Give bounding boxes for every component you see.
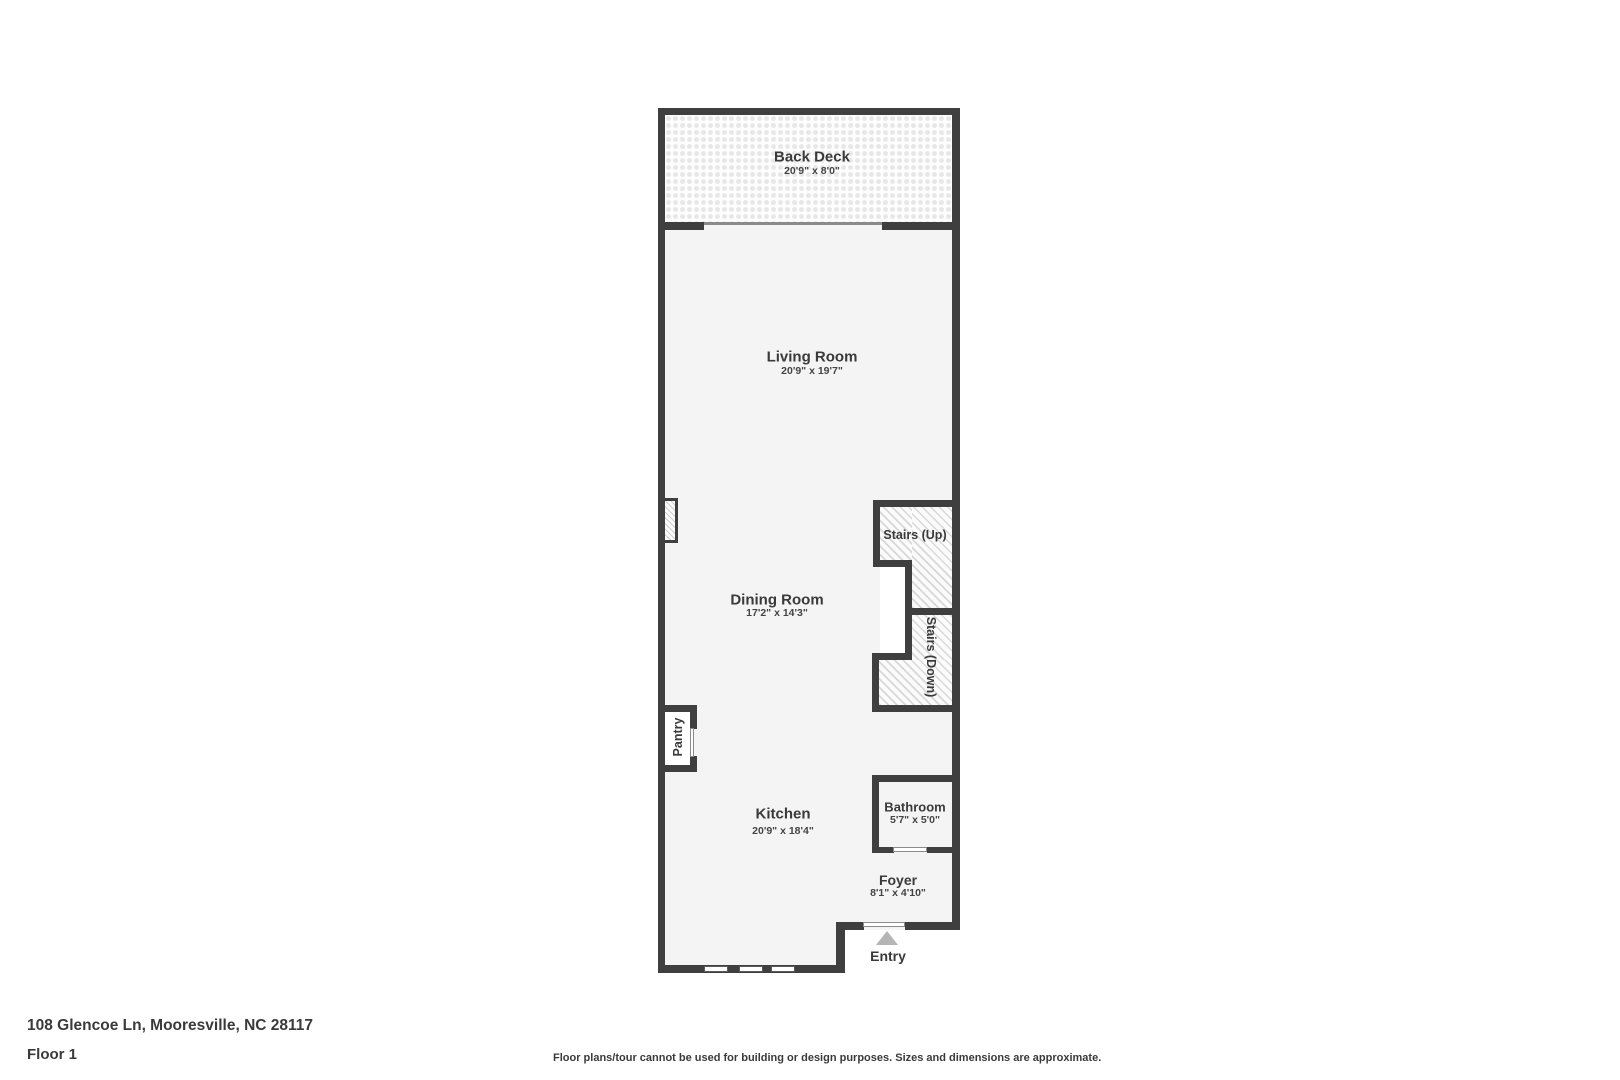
wall-segment	[872, 847, 894, 853]
wall-segment	[658, 765, 697, 772]
room-label-back-deck: Back Deck	[774, 149, 850, 166]
wall-segment	[882, 222, 960, 230]
room-label-kitchen: Kitchen	[755, 806, 810, 823]
window	[704, 966, 728, 972]
wall-segment	[872, 653, 879, 712]
stairs-up-area	[912, 507, 952, 608]
label-entry: Entry	[870, 948, 906, 964]
wall-segment	[952, 108, 960, 930]
entry-door	[863, 922, 905, 927]
wall-segment	[905, 608, 960, 615]
wall-segment	[873, 500, 960, 507]
floor-label: Floor 1	[27, 1046, 77, 1063]
wall-segment	[872, 705, 960, 712]
room-dims-kitchen: 20'9" x 18'4"	[752, 825, 814, 837]
wall-segment	[658, 108, 665, 973]
wall-segment	[873, 500, 880, 567]
floor-plan-page: Back Deck 20'9" x 8'0" Living Room 20'9"…	[0, 0, 1620, 1080]
wall-segment	[872, 775, 879, 853]
room-dims-bathroom: 5'7" x 5'0"	[890, 814, 940, 826]
window	[739, 966, 763, 972]
entry-arrow-icon	[876, 931, 898, 945]
wall-segment	[927, 847, 960, 853]
sliding-door	[704, 222, 882, 225]
window	[771, 966, 795, 972]
wall-segment	[658, 222, 704, 230]
label-stairs-down: Stairs (Down)	[924, 617, 938, 698]
room-dims-living-room: 20'9" x 19'7"	[781, 365, 843, 377]
room-label-living-room: Living Room	[767, 349, 858, 366]
room-dims-dining-room: 17'2" x 14'3"	[746, 607, 808, 619]
bathroom-door	[893, 847, 927, 852]
label-stairs-up: Stairs (Up)	[883, 528, 946, 542]
wall-segment	[658, 108, 960, 115]
room-label-foyer: Foyer	[879, 872, 917, 888]
stairs-down-area	[879, 660, 952, 705]
pantry-door	[690, 728, 694, 757]
wall-segment	[872, 775, 960, 782]
wall-segment	[690, 705, 697, 729]
disclaimer-text: Floor plans/tour cannot be used for buil…	[553, 1052, 1101, 1064]
wall-segment	[836, 922, 864, 930]
room-dims-back-deck: 20'9" x 8'0"	[784, 165, 840, 177]
room-label-bathroom: Bathroom	[884, 800, 945, 815]
stair-pocket-area	[880, 567, 905, 653]
label-pantry: Pantry	[671, 718, 685, 757]
wall-segment	[905, 922, 960, 930]
room-dims-foyer: 8'1" x 4'10"	[870, 887, 926, 899]
address-text: 108 Glencoe Ln, Mooresville, NC 28117	[27, 1017, 313, 1035]
room-label-dining-room: Dining Room	[730, 592, 823, 609]
